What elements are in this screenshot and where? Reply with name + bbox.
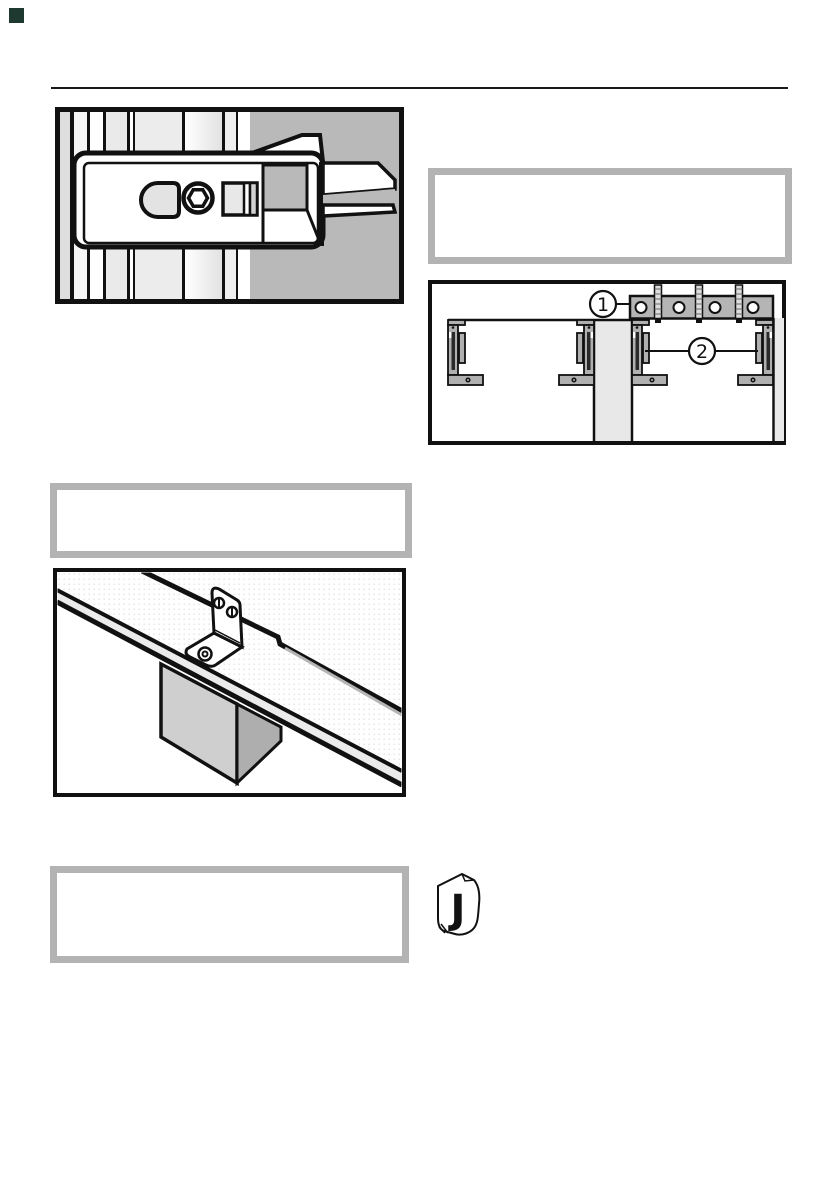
hex-socket — [189, 190, 208, 206]
centre-partition — [594, 320, 632, 441]
notice-box — [50, 866, 409, 963]
notice-box-content — [435, 175, 785, 257]
mounting-brackets-illustration: 1 2 — [428, 280, 786, 445]
page-corner-mark — [9, 8, 24, 23]
right-wall — [775, 318, 784, 441]
bag-icon: J — [435, 871, 481, 938]
latch-assembly-illustration — [55, 107, 404, 304]
notice-box — [428, 168, 792, 264]
notice-box — [50, 483, 412, 558]
figure-angle-bracket — [53, 568, 406, 797]
latch-housing-opening — [263, 165, 307, 210]
latch-slot — [141, 183, 179, 217]
bag-label: J — [448, 887, 466, 933]
callout-2-label: 2 — [696, 341, 708, 363]
figure-latch-assembly — [55, 107, 404, 304]
notice-box-content — [57, 490, 405, 551]
header-rule — [51, 87, 788, 89]
parts-bag-icon: J — [435, 871, 481, 938]
angle-bracket-illustration — [53, 568, 406, 797]
figure-mounting-brackets: 1 2 — [428, 280, 786, 445]
latch-lower-fin — [323, 205, 395, 216]
notice-box-content — [57, 873, 402, 956]
callout-1-label: 1 — [597, 294, 609, 316]
